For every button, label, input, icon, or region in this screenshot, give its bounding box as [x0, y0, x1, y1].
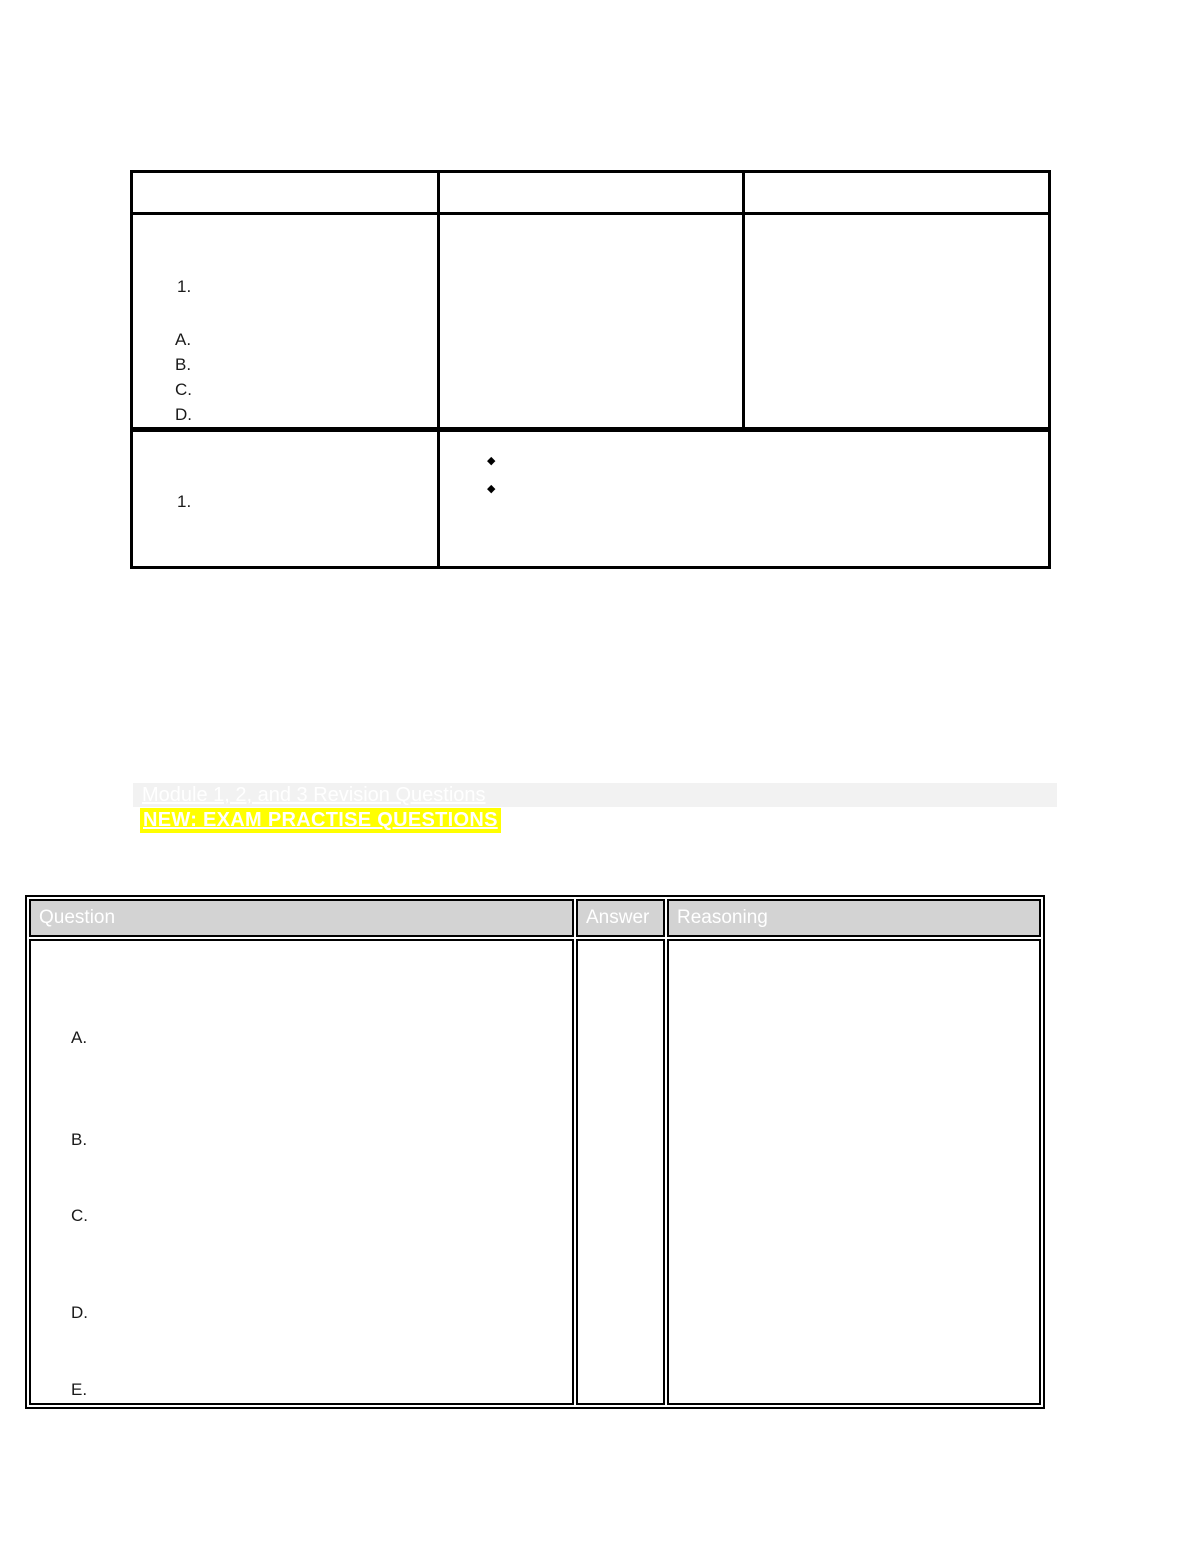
answer-1-cell — [439, 214, 744, 430]
qa-table: Question Answer Reasoning A. B. C. D. E. — [25, 895, 1045, 1409]
top-table-header-cell-1 — [132, 172, 439, 214]
module-heading-bar: Module 1, 2, and 3 Revision Questions — [133, 783, 1057, 807]
bullet-icon: ◆ — [487, 483, 495, 495]
answer-column-header: Answer — [576, 899, 665, 937]
top-table-row-2: 1. ◆ ◆ — [132, 430, 1050, 568]
option-c: C. — [71, 1206, 88, 1226]
reasoning-1-cell — [744, 214, 1050, 430]
bullet-item: ◆ — [487, 474, 1048, 502]
exam-heading-line: NEW: EXAM PRACTISE QUESTIONS — [140, 808, 501, 833]
qa-table-header-row: Question Answer Reasoning — [29, 899, 1041, 937]
qa-table-body-row: A. B. C. D. E. — [29, 939, 1041, 1405]
option-e: E. — [71, 1380, 87, 1400]
answer-cell — [576, 939, 665, 1405]
top-table-header-cell-2 — [439, 172, 744, 214]
exam-practise-link[interactable]: NEW: EXAM PRACTISE QUESTIONS — [140, 808, 501, 833]
top-table-header-cell-3 — [744, 172, 1050, 214]
bullet-icon: ◆ — [487, 455, 495, 467]
top-table-row-1: 1. A. B. C. D. — [132, 214, 1050, 430]
reasoning-column-header: Reasoning — [667, 899, 1041, 937]
numbered-item: 1. — [177, 277, 437, 297]
option-a: A. — [71, 1028, 87, 1048]
question-cell: A. B. C. D. E. — [29, 939, 574, 1405]
numbered-item: 1. — [177, 492, 437, 512]
option-c: C. — [175, 377, 437, 402]
question-column-header: Question — [29, 899, 574, 937]
option-list: A. B. C. D. — [175, 327, 437, 427]
option-b: B. — [71, 1130, 87, 1150]
bullet-list: ◆ ◆ — [487, 446, 1048, 502]
merged-notes-cell: ◆ ◆ — [439, 430, 1050, 568]
document-page: 1. A. B. C. D. 1. ◆ — [0, 0, 1200, 1553]
question-2-cell: 1. — [132, 430, 439, 568]
module-revision-link[interactable]: Module 1, 2, and 3 Revision Questions — [142, 784, 486, 806]
top-table-header-row — [132, 172, 1050, 214]
question-1-cell: 1. A. B. C. D. — [132, 214, 439, 430]
top-table: 1. A. B. C. D. 1. ◆ — [130, 170, 1051, 569]
option-d: D. — [175, 402, 437, 427]
bullet-item: ◆ — [487, 446, 1048, 474]
option-a: A. — [175, 327, 437, 352]
option-b: B. — [175, 352, 437, 377]
option-d: D. — [71, 1303, 88, 1323]
reasoning-cell — [667, 939, 1041, 1405]
